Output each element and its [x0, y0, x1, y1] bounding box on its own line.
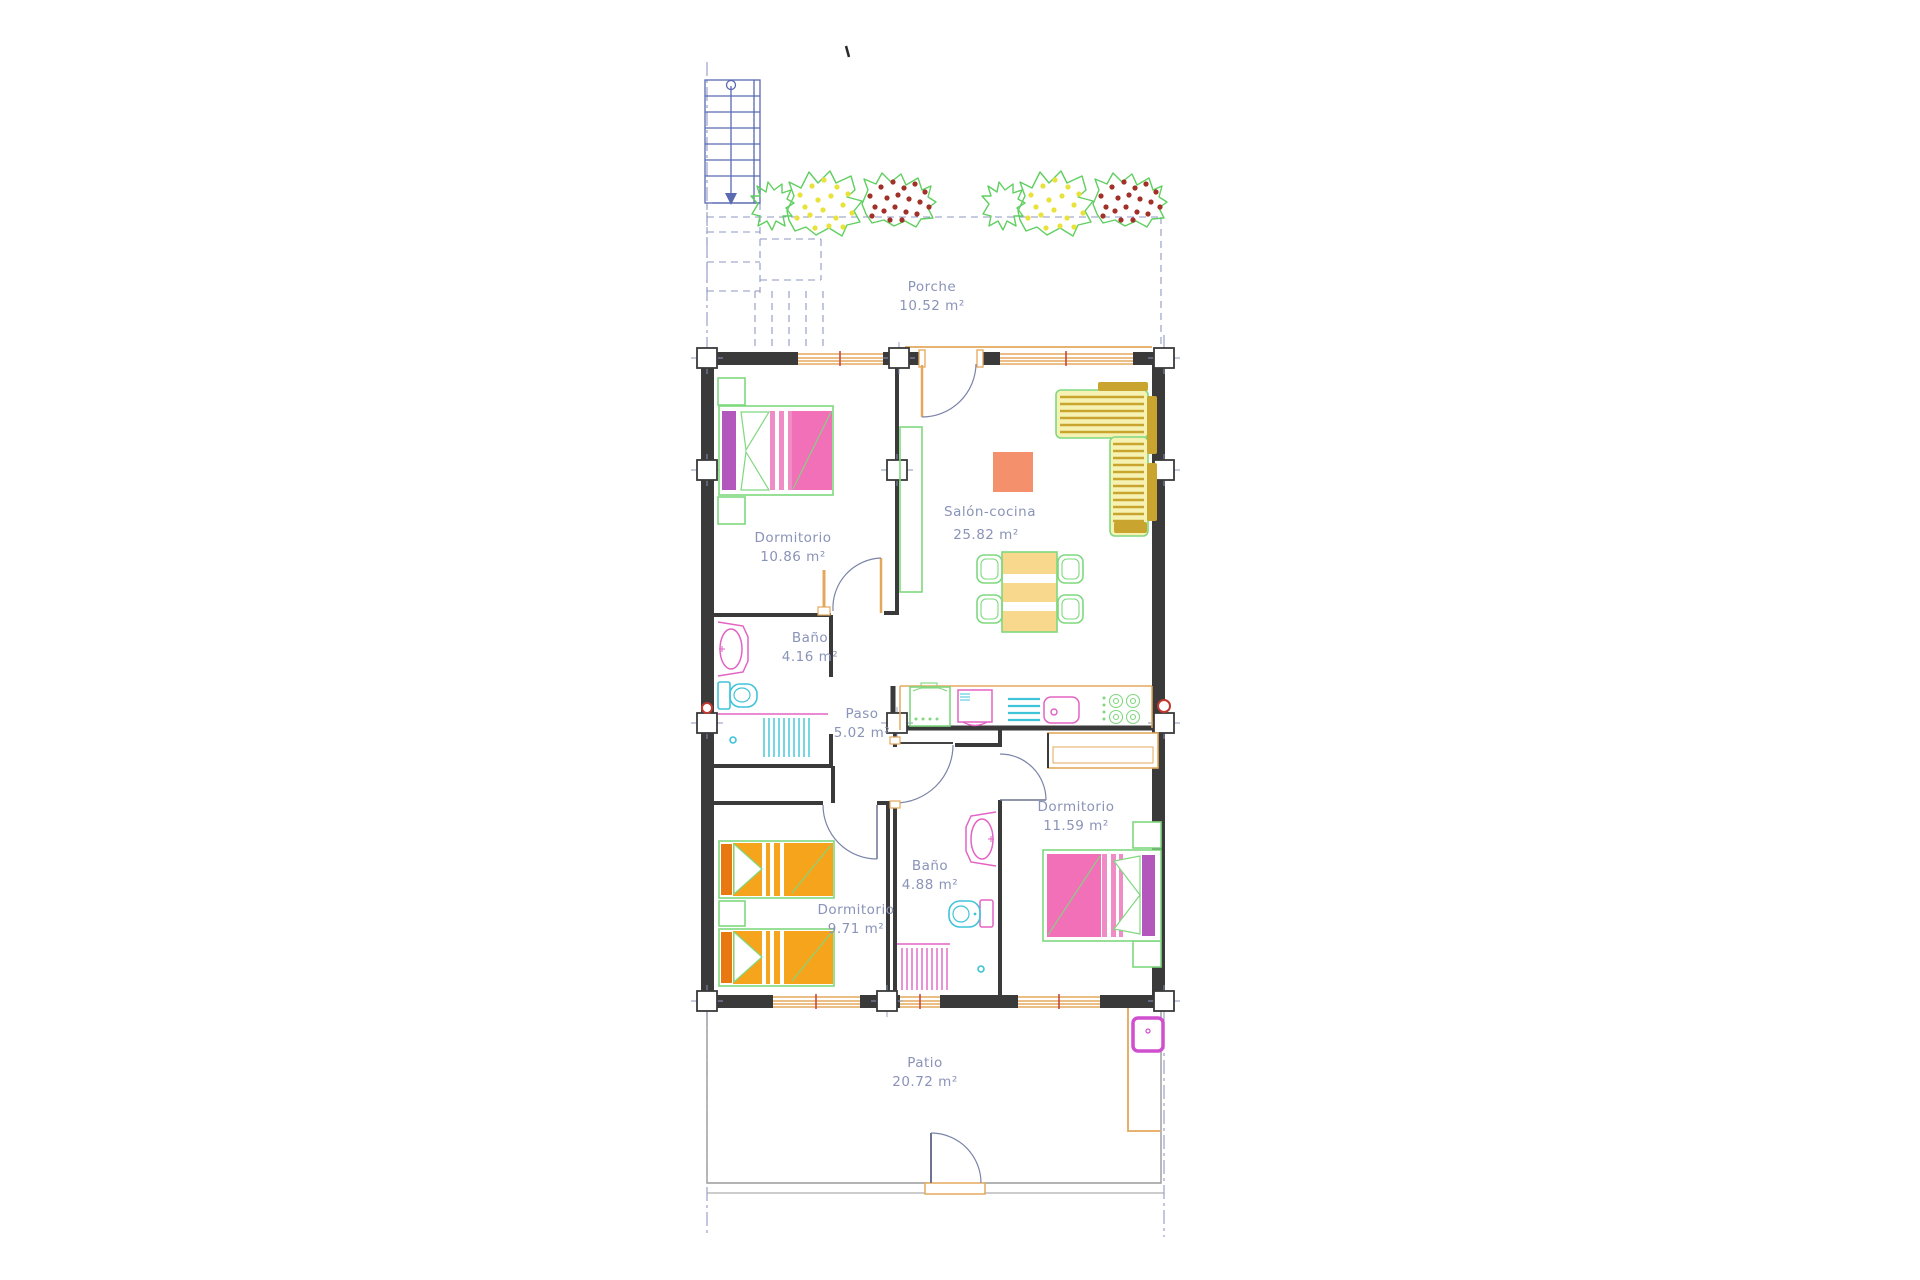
kitchen-sink [1044, 697, 1079, 723]
door-dormitorio2 [1000, 754, 1046, 800]
column [691, 342, 723, 374]
patio-drain-unit [1133, 1018, 1163, 1051]
stairs [705, 80, 760, 205]
riser-symbol-left [702, 703, 712, 713]
label-salon-name: Salón-cocina [944, 504, 1036, 520]
floor-plan-canvas: Porche 10.52 m² Salón-cocina 25.82 m² Do… [0, 0, 1920, 1280]
label-patio-area: 20.72 m² [892, 1074, 958, 1090]
toilet [718, 682, 757, 709]
window-salon [1000, 351, 1133, 366]
salon-furniture [900, 382, 1157, 730]
door-bano1 [818, 570, 830, 615]
twin-bed [719, 929, 834, 986]
label-porche-name: Porche [908, 279, 956, 295]
corner-sofa [1056, 382, 1157, 536]
column [871, 985, 903, 1017]
chair [1058, 555, 1083, 583]
drainboard [1008, 699, 1040, 720]
leader-tick [846, 46, 849, 57]
window-dormitorio1 [798, 351, 883, 366]
headboard [721, 844, 732, 895]
pergola-joists [755, 291, 823, 350]
label-porche-area: 10.52 m² [899, 298, 965, 314]
label-dormitorio1-name: Dormitorio [755, 530, 832, 546]
door-bano2 [890, 737, 953, 808]
twin-bed [719, 841, 834, 898]
shrub-cluster-right [982, 171, 1167, 236]
chair [977, 595, 1002, 623]
dishwasher [958, 690, 992, 726]
riser-symbol-right [1158, 700, 1170, 712]
shelf-unit [900, 427, 922, 592]
window-dormitorio2 [1018, 994, 1100, 1009]
nightstand [1133, 941, 1161, 967]
double-bed [719, 406, 833, 495]
dormitorio1-furniture [718, 378, 833, 524]
washing-machine [910, 683, 950, 726]
label-dormitorio3-name: Dormitorio [818, 902, 895, 918]
kitchen-counter [900, 683, 1152, 730]
cooktop [1103, 695, 1140, 724]
column [691, 985, 723, 1017]
bathroom-sink [966, 812, 996, 866]
double-bed [1043, 850, 1161, 941]
door-dormitorio1 [833, 558, 881, 613]
label-bano2-area: 4.88 m² [902, 877, 958, 893]
patio-area [707, 1008, 1164, 1194]
label-paso-name: Paso [845, 706, 878, 722]
floor-plan-drawing: Porche 10.52 m² Salón-cocina 25.82 m² Do… [0, 0, 1920, 1280]
nightstand [718, 497, 745, 524]
bathroom-sink [718, 622, 748, 676]
side-table [993, 452, 1033, 492]
shower-tray [764, 718, 809, 757]
nightstand [1133, 822, 1161, 848]
patio-gate [925, 1133, 985, 1194]
nightstand [719, 901, 745, 926]
floor-drain [730, 737, 736, 743]
label-bano1-name: Baño [792, 630, 828, 646]
headboard [1142, 855, 1155, 936]
headboard [722, 411, 736, 490]
headboard [721, 932, 732, 983]
label-salon-area: 25.82 m² [953, 527, 1019, 543]
label-patio-name: Patio [907, 1055, 943, 1071]
shrub-cluster-left [751, 171, 936, 236]
landscaping [751, 171, 1167, 236]
dormitorio2-furniture [1043, 733, 1161, 967]
nightstand [718, 378, 745, 405]
column [881, 454, 913, 486]
label-bano2-name: Baño [912, 858, 948, 874]
chair [977, 555, 1002, 583]
dining-set [977, 552, 1083, 632]
label-dormitorio2-name: Dormitorio [1038, 799, 1115, 815]
chair [1058, 595, 1083, 623]
label-dormitorio1-area: 10.86 m² [760, 549, 826, 565]
window-dormitorio3 [773, 994, 860, 1009]
label-dormitorio3-area: 9.71 m² [828, 921, 884, 937]
porch-boundary [707, 203, 1161, 350]
label-bano1-area: 4.16 m² [782, 649, 838, 665]
bano2-fixtures [897, 812, 996, 990]
label-paso-area: 5.02 m² [834, 725, 890, 741]
entrance-door [919, 350, 983, 417]
wardrobe [1048, 733, 1158, 768]
shower-tray [902, 948, 947, 990]
window-bano2 [900, 994, 940, 1009]
toilet [949, 900, 993, 927]
floor-drain [978, 966, 984, 972]
label-dormitorio2-area: 11.59 m² [1043, 818, 1109, 834]
